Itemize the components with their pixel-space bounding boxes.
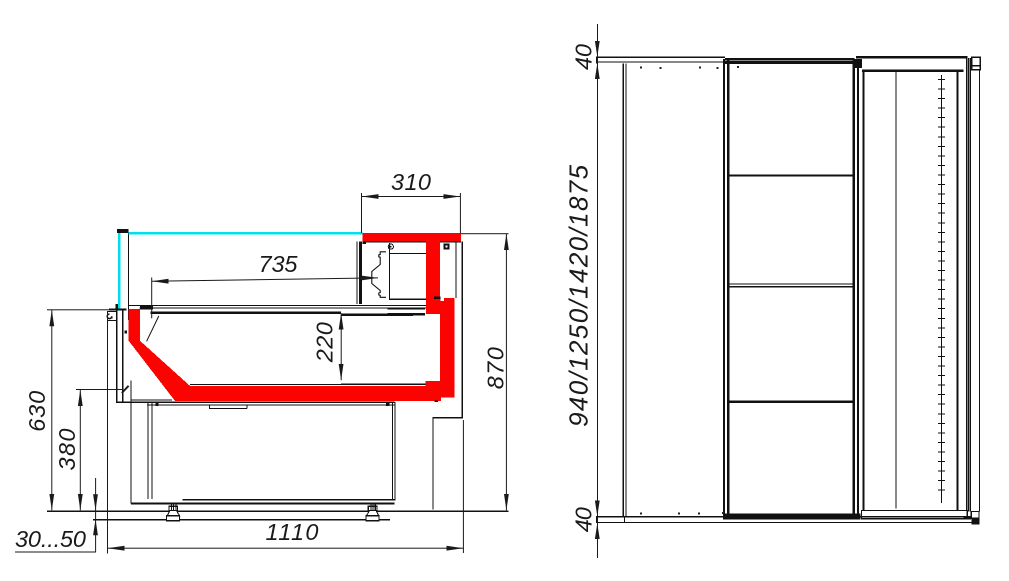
- svg-text:40: 40: [571, 507, 597, 532]
- svg-text:380: 380: [54, 429, 80, 471]
- svg-text:735: 735: [259, 251, 299, 277]
- svg-text:30...50: 30...50: [15, 526, 86, 552]
- svg-text:630: 630: [24, 391, 50, 432]
- svg-text:1110: 1110: [266, 519, 319, 545]
- svg-text:310: 310: [391, 169, 431, 195]
- svg-text:220: 220: [312, 322, 338, 363]
- svg-text:40: 40: [571, 44, 597, 70]
- svg-text:870: 870: [483, 347, 509, 389]
- svg-text:940/1250/1420/1875: 940/1250/1420/1875: [564, 164, 594, 427]
